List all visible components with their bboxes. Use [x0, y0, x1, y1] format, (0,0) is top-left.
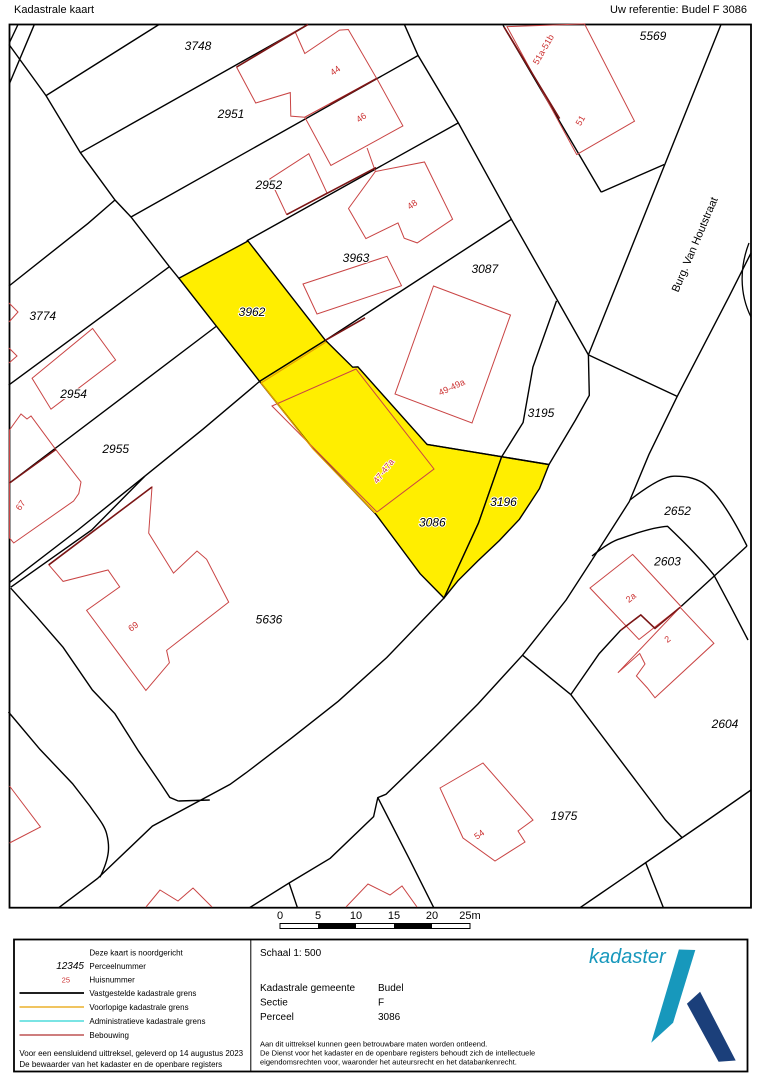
svg-text:Aan dit uittreksel kunnen geen: Aan dit uittreksel kunnen geen betrouwba… — [260, 1040, 487, 1049]
svg-text:Voor een eensluidend uittrekse: Voor een eensluidend uittreksel, gelever… — [19, 1049, 243, 1058]
svg-text:3086: 3086 — [378, 1012, 401, 1023]
svg-text:Perceelnummer: Perceelnummer — [89, 962, 146, 971]
svg-text:2951: 2951 — [217, 107, 245, 121]
svg-text:Schaal 1: 500: Schaal 1: 500 — [260, 948, 322, 959]
svg-text:2954: 2954 — [59, 387, 87, 401]
svg-text:3087: 3087 — [471, 262, 499, 276]
svg-text:51a-51b: 51a-51b — [531, 33, 556, 67]
svg-text:3962: 3962 — [239, 305, 266, 319]
svg-text:48: 48 — [405, 198, 419, 212]
svg-text:0: 0 — [277, 910, 283, 922]
svg-text:15: 15 — [388, 910, 400, 922]
svg-text:10: 10 — [350, 910, 362, 922]
svg-text:2603: 2603 — [653, 555, 681, 569]
svg-text:5636: 5636 — [256, 613, 283, 627]
svg-text:Perceel: Perceel — [260, 1012, 294, 1023]
svg-text:67: 67 — [14, 498, 28, 512]
svg-text:25m: 25m — [459, 910, 480, 922]
svg-text:Sectie: Sectie — [260, 998, 288, 1009]
svg-text:3748: 3748 — [185, 39, 212, 53]
svg-text:Burg. Van Houtstraat: Burg. Van Houtstraat — [670, 196, 721, 294]
svg-text:Budel: Budel — [378, 983, 404, 994]
svg-text:3196: 3196 — [490, 495, 517, 509]
svg-text:54: 54 — [472, 828, 486, 842]
svg-text:3774: 3774 — [29, 309, 56, 323]
svg-text:3963: 3963 — [343, 251, 370, 265]
svg-text:eigendomsrechten voor, waarond: eigendomsrechten voor, waaronder het aut… — [260, 1058, 517, 1067]
svg-text:5: 5 — [315, 910, 321, 922]
svg-text:2604: 2604 — [711, 717, 739, 731]
svg-text:49-49a: 49-49a — [437, 377, 467, 398]
svg-text:Uw referentie: Budel F 3086: Uw referentie: Budel F 3086 — [610, 4, 747, 16]
svg-text:Administratieve kadastrale gre: Administratieve kadastrale grens — [89, 1017, 205, 1026]
svg-text:20: 20 — [426, 910, 438, 922]
svg-text:3195: 3195 — [528, 406, 555, 420]
svg-text:25: 25 — [62, 976, 70, 985]
svg-text:2955: 2955 — [101, 442, 129, 456]
svg-text:2: 2 — [662, 634, 672, 645]
svg-text:Kadastrale kaart: Kadastrale kaart — [14, 4, 94, 16]
svg-text:F: F — [378, 998, 384, 1009]
svg-text:kadaster: kadaster — [589, 946, 667, 968]
svg-text:12345: 12345 — [56, 961, 84, 972]
svg-text:Kadastrale gemeente: Kadastrale gemeente — [260, 983, 356, 994]
svg-text:De bewaarder van het kadaster: De bewaarder van het kadaster en de open… — [19, 1060, 222, 1069]
svg-text:46: 46 — [354, 111, 368, 125]
svg-text:5569: 5569 — [640, 29, 667, 43]
svg-text:Deze kaart is noordgericht: Deze kaart is noordgericht — [89, 949, 183, 958]
svg-text:Vastgestelde kadastrale grens: Vastgestelde kadastrale grens — [89, 989, 196, 998]
svg-text:2652: 2652 — [663, 504, 691, 518]
svg-text:69: 69 — [126, 620, 140, 634]
svg-text:44: 44 — [328, 64, 342, 78]
svg-text:Voorlopige kadastrale grens: Voorlopige kadastrale grens — [89, 1003, 188, 1012]
svg-text:Huisnummer: Huisnummer — [89, 976, 135, 985]
svg-text:De Dienst voor het kadaster en: De Dienst voor het kadaster en de openba… — [260, 1049, 535, 1058]
svg-text:3086: 3086 — [419, 516, 446, 530]
svg-text:2a: 2a — [624, 591, 638, 605]
svg-text:2952: 2952 — [254, 178, 282, 192]
svg-text:1975: 1975 — [551, 809, 578, 823]
svg-text:51: 51 — [574, 114, 588, 128]
svg-text:Bebouwing: Bebouwing — [89, 1031, 129, 1040]
